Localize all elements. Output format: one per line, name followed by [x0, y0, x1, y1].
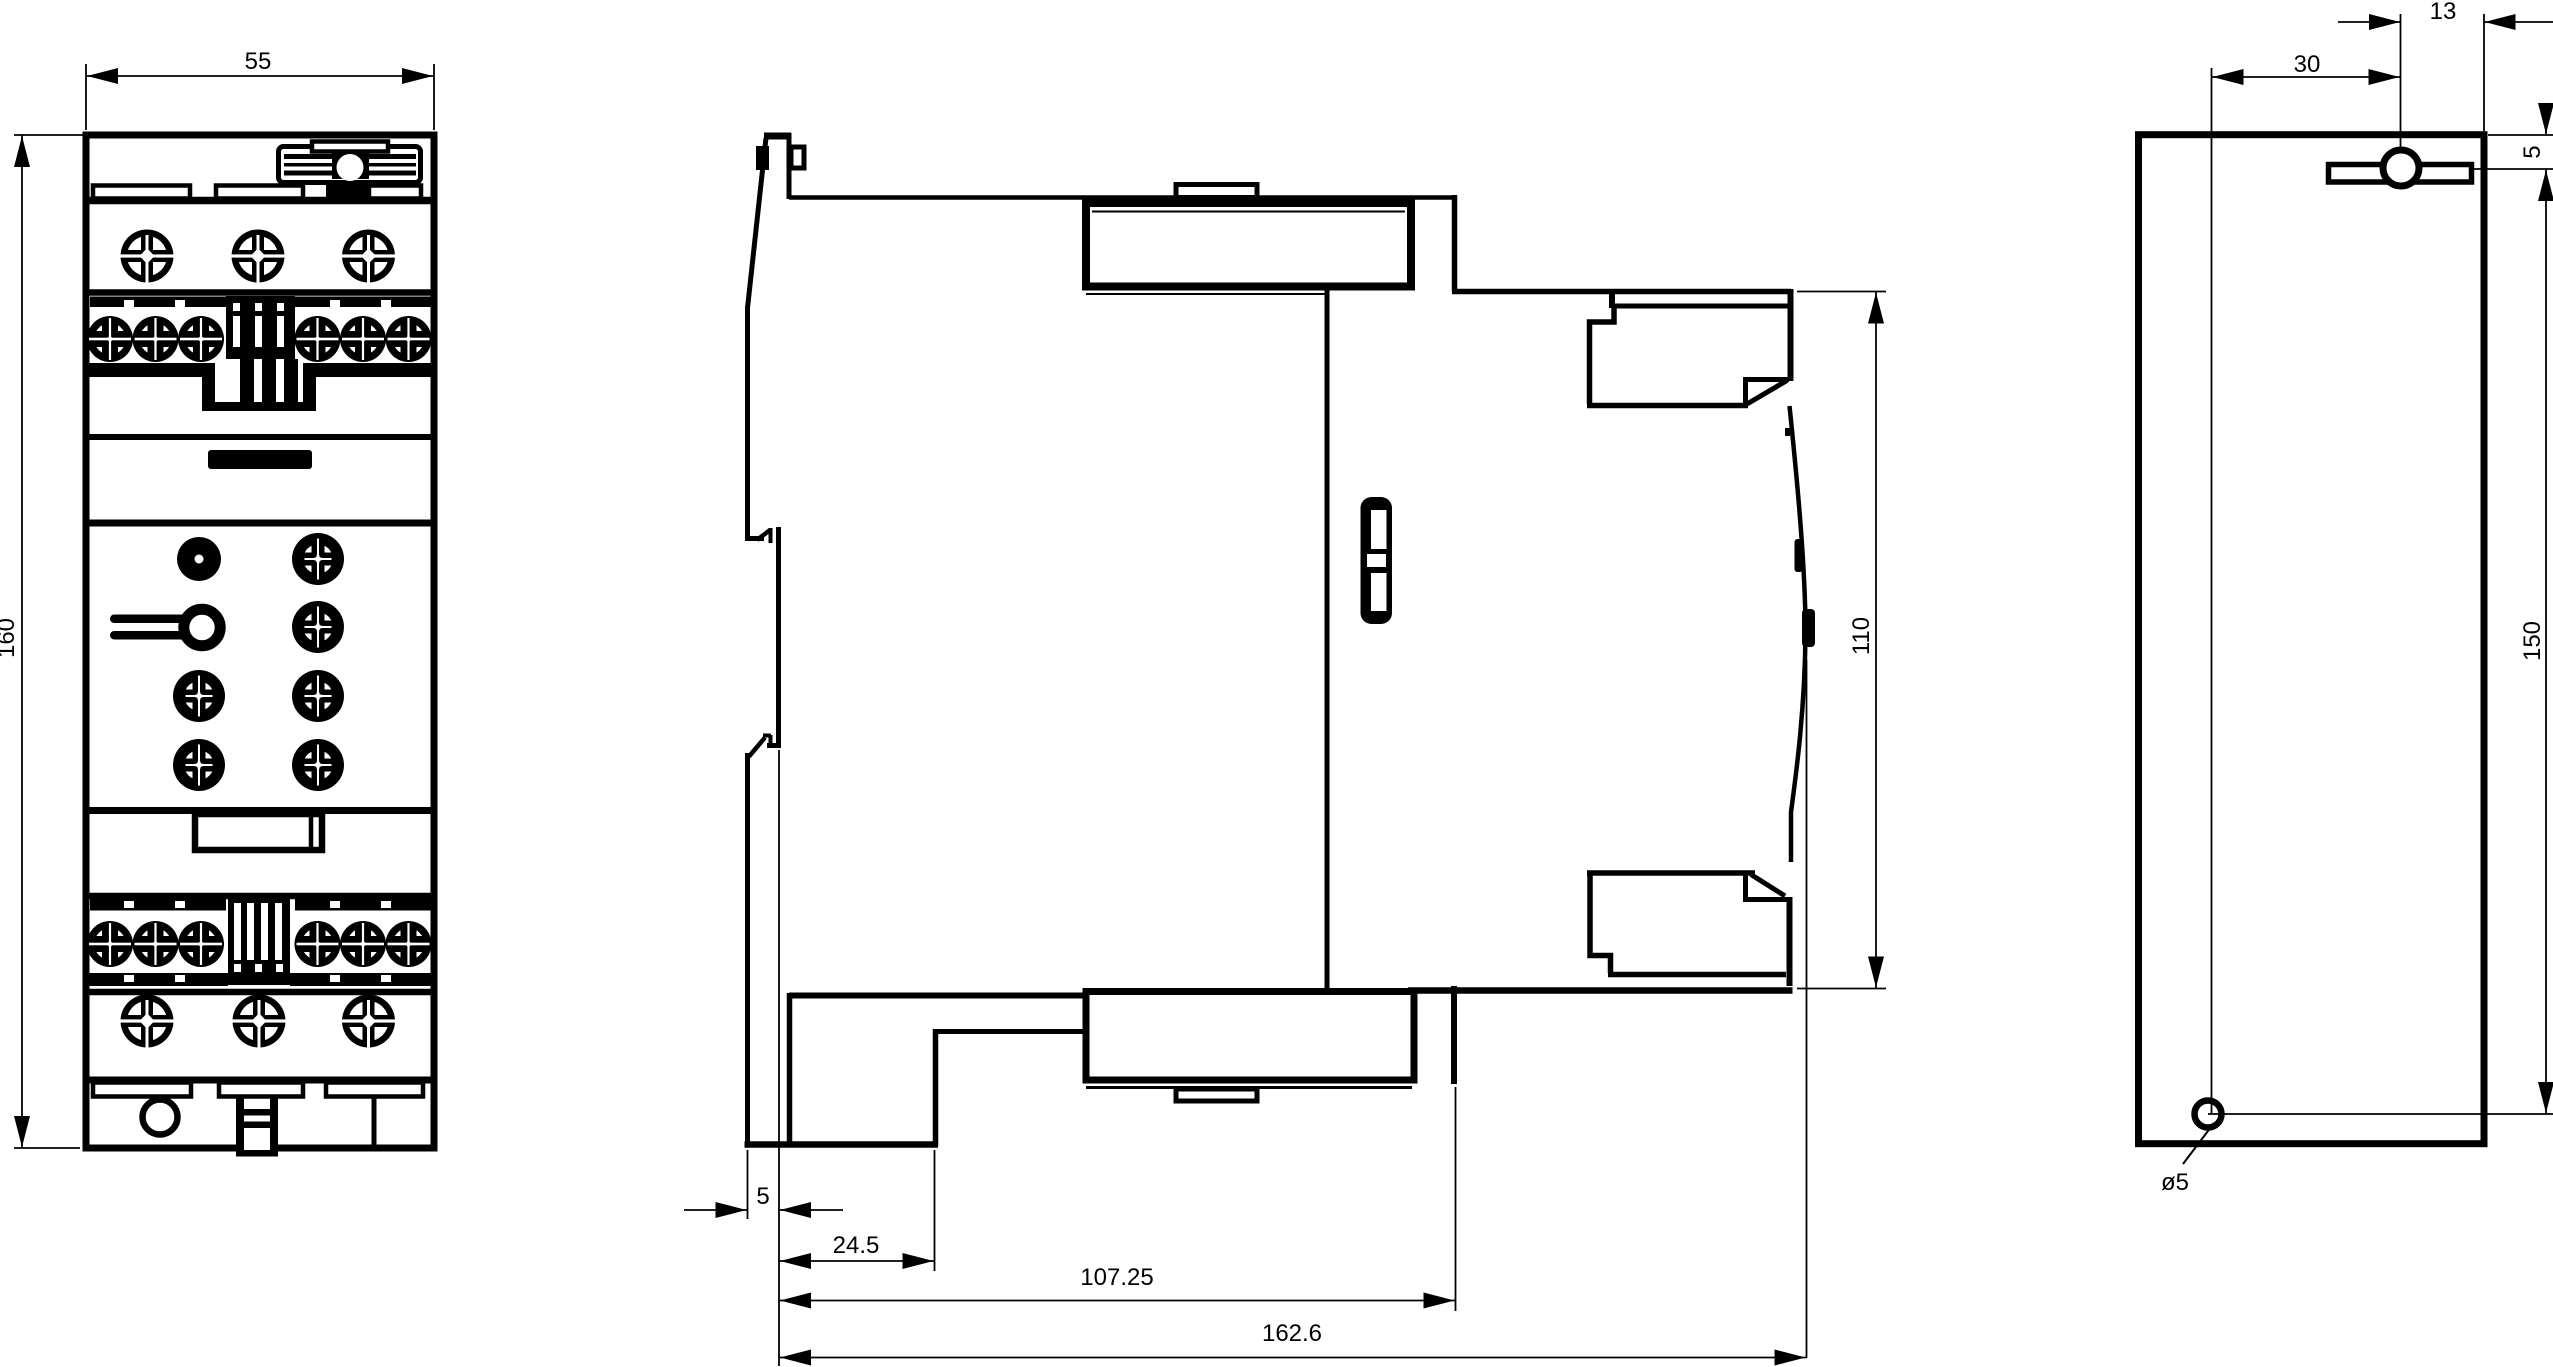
svg-text:162.6: 162.6: [1262, 1320, 1322, 1347]
svg-text:5: 5: [2519, 145, 2546, 158]
svg-text:55: 55: [245, 48, 272, 75]
svg-text:ø5: ø5: [2161, 1169, 2189, 1196]
svg-text:30: 30: [2294, 51, 2321, 78]
svg-text:24.5: 24.5: [833, 1232, 880, 1259]
svg-text:13: 13: [2430, 0, 2457, 25]
svg-text:107.25: 107.25: [1080, 1264, 1153, 1291]
svg-text:150: 150: [2519, 621, 2546, 661]
svg-text:110: 110: [1848, 617, 1875, 655]
svg-text:5: 5: [756, 1183, 769, 1210]
svg-text:160: 160: [0, 618, 20, 658]
